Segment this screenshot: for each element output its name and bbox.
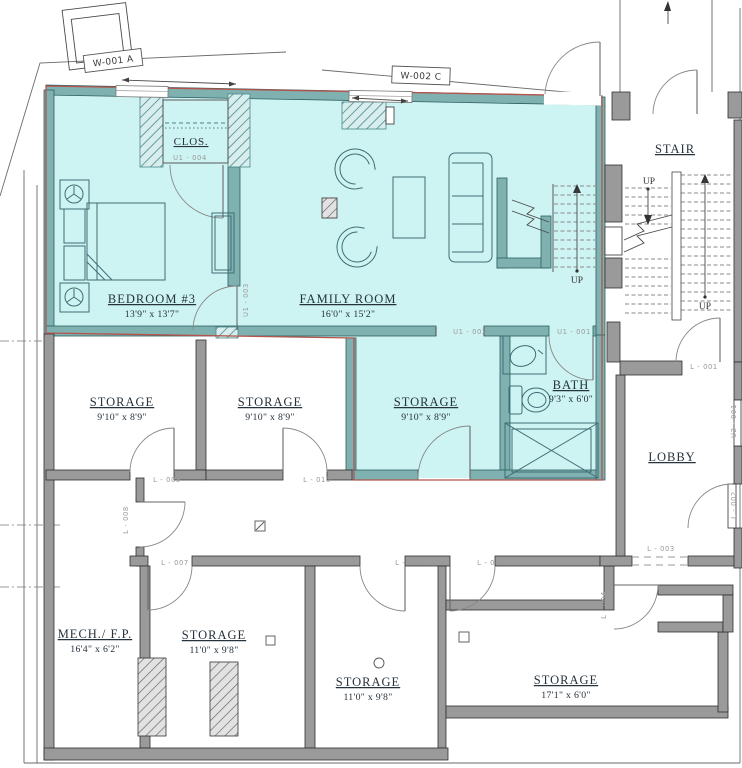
door-tag-l-007: L - 007 <box>161 559 189 567</box>
room-dims-family: 16'0" x 15'2" <box>321 309 376 320</box>
chimney-hatch-2 <box>210 662 238 736</box>
room-dims-storage-s: 11'0" x 9'8" <box>343 692 392 703</box>
door-tag-u1-001: U1 - 001 <box>557 328 591 336</box>
room-label-storage-nw: STORAGE <box>90 395 154 409</box>
floor-drain-icon <box>255 521 265 531</box>
room-dims-storage-n: 9'10" x 8'9" <box>245 412 294 423</box>
room-label-storage-s: STORAGE <box>336 675 400 689</box>
door-l-009 <box>130 428 174 472</box>
room-dims-bath: 9'3" x 6'0" <box>549 394 593 405</box>
door-tag-l-003: L - 003 <box>647 545 675 553</box>
door-tag-l-009: L - 009 <box>153 476 181 484</box>
room-dims-storage-unit: 9'10" x 8'9" <box>401 412 450 423</box>
room-label-stair: STAIR <box>655 142 695 156</box>
up-label: UP <box>643 177 655 187</box>
room-label-mech: MECH./ F.P. <box>58 627 133 641</box>
door-tag-l-006: L - 006 <box>395 559 423 567</box>
window-tag-w002: W-002 C <box>400 71 441 82</box>
floor-plan-sheet: W-001 A W-002 C <box>0 0 742 768</box>
door-tag-l-001: L - 001 <box>690 363 718 371</box>
opening-l-003 <box>632 557 688 565</box>
closet-wall-hatch-left <box>140 94 163 167</box>
floor-symbols <box>255 521 469 668</box>
door-tag-u2-001: U2 - 001 <box>730 404 738 438</box>
door-l-008 <box>140 502 185 547</box>
room-label-closet: CLOS. <box>174 136 209 148</box>
room-label-bedroom3: BEDROOM #3 <box>108 292 196 306</box>
room-dims-mech: 16'4" x 6'2" <box>70 644 119 655</box>
door-l-001 <box>676 318 720 362</box>
up-label: UP <box>571 276 583 286</box>
door-family-exterior <box>544 42 601 106</box>
floor-drain-icon <box>459 632 469 642</box>
door-tag-l-005: L - 005 <box>477 559 505 567</box>
room-label-lobby: LOBBY <box>648 450 695 464</box>
floor-drain-icon <box>266 636 275 645</box>
door-tag-u1-002: U1 - 002 <box>453 328 487 336</box>
door-tag-l-010: L - 010 <box>303 476 331 484</box>
room-label-storage-unit: STORAGE <box>394 395 458 409</box>
door-l-004 <box>614 585 658 629</box>
room-dims-bedroom3: 13'9" x 13'7" <box>125 309 180 320</box>
room-dims-storage-nw: 9'10" x 8'9" <box>97 412 146 423</box>
floor-plan-drawing: W-001 A W-002 C <box>0 0 742 768</box>
room-label-storage-se: STORAGE <box>534 673 598 687</box>
door-tag-u1-003: U1 - 003 <box>242 283 250 317</box>
door-tag-l-008: L - 008 <box>122 506 130 534</box>
column-icon <box>374 658 384 668</box>
door-tag-u1-004: U1 - 004 <box>173 154 207 162</box>
stair-stringer <box>672 172 681 320</box>
window-well-w001: W-001 A <box>62 3 236 98</box>
family-wall-hatch <box>342 102 386 129</box>
room-label-storage-sw: STORAGE <box>182 628 246 642</box>
side-table <box>322 198 337 218</box>
closet-wall-hatch-right <box>228 94 250 167</box>
door-l-002 <box>688 484 736 528</box>
room-label-storage-n: STORAGE <box>238 395 302 409</box>
door-l-006 <box>360 566 405 611</box>
stair-main <box>624 172 735 320</box>
door-tag-l-002: L - 002 <box>730 491 738 519</box>
door-l-010 <box>283 428 327 472</box>
room-label-bath: BATH <box>553 378 590 392</box>
up-label: UP <box>699 302 711 312</box>
door-tag-l-004: L - 004 <box>600 591 608 619</box>
door-l-007 <box>148 566 192 610</box>
north-reference-arrow <box>664 1 671 24</box>
chimney-hatch-1 <box>138 658 166 736</box>
room-dims-storage-sw: 11'0" x 9'8" <box>189 645 238 656</box>
room-label-family: FAMILY ROOM <box>300 292 397 306</box>
room-dims-storage-se: 17'1" x 6'0" <box>541 690 590 701</box>
door-stair-top <box>653 70 697 114</box>
